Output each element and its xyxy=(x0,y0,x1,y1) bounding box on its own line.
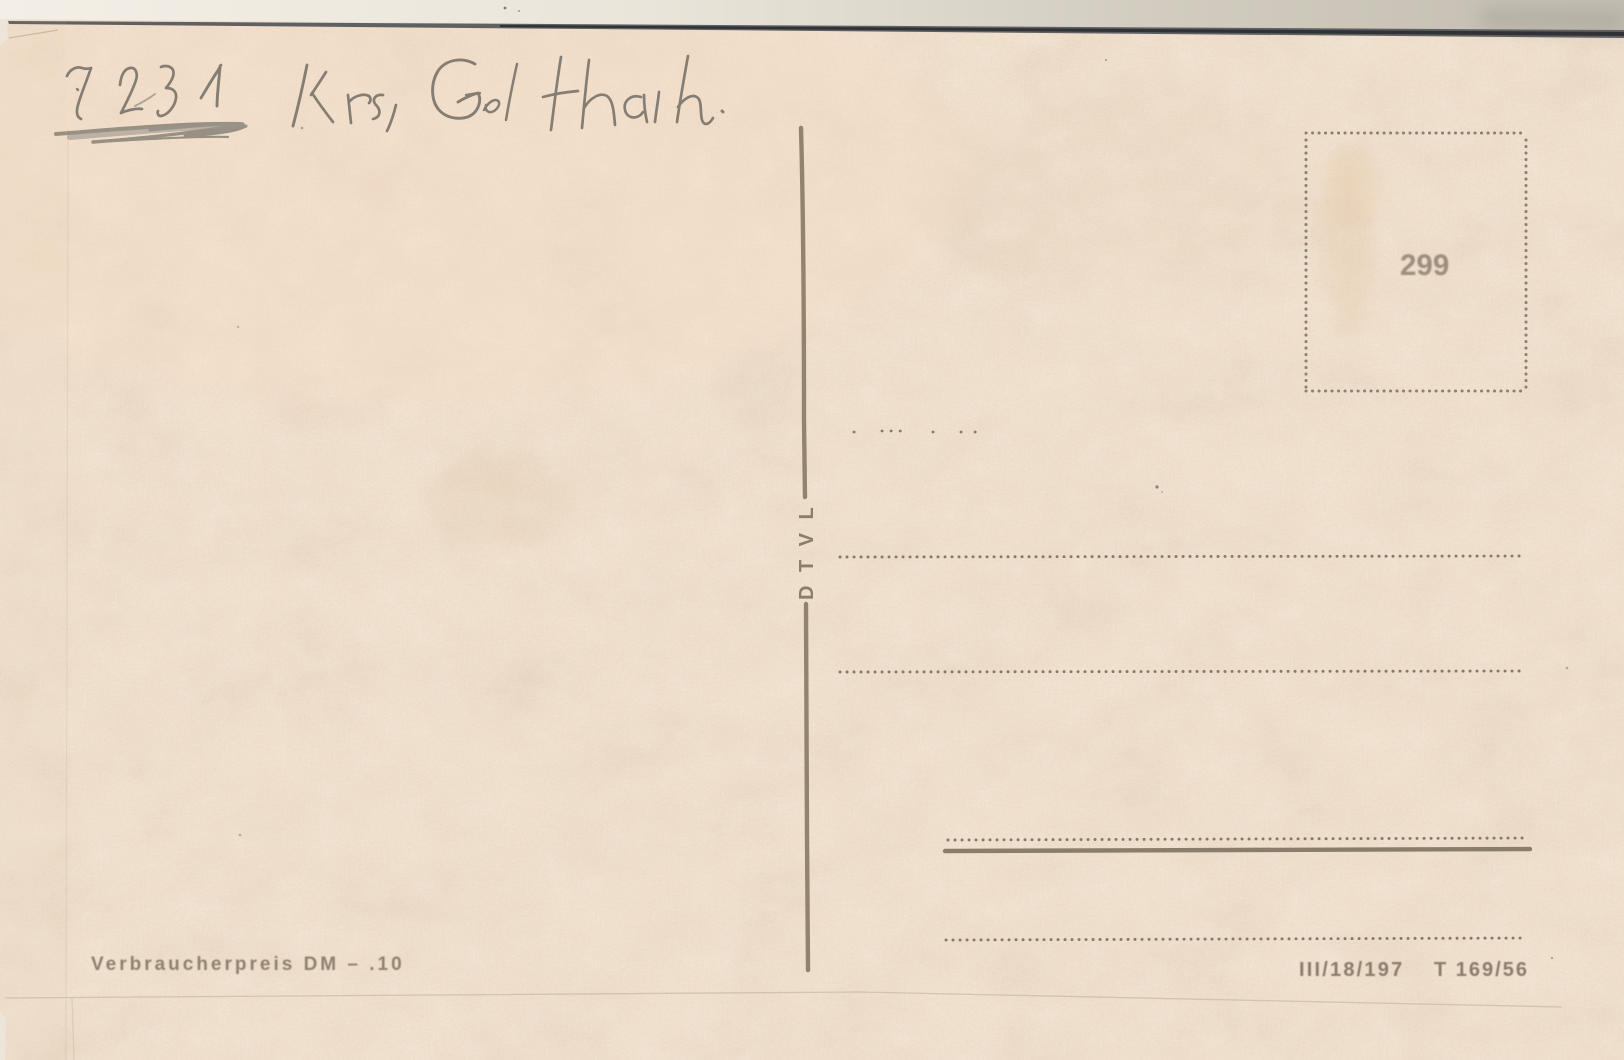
svg-text:299: 299 xyxy=(1400,249,1449,282)
svg-text:Verbraucherpreis DM – .10: Verbraucherpreis DM – .10 xyxy=(91,954,405,975)
svg-text:DTVL: DTVL xyxy=(796,494,818,600)
svg-text:III/18/197: III/18/197 xyxy=(1299,959,1404,981)
svg-text:T 169/56: T 169/56 xyxy=(1434,959,1529,981)
